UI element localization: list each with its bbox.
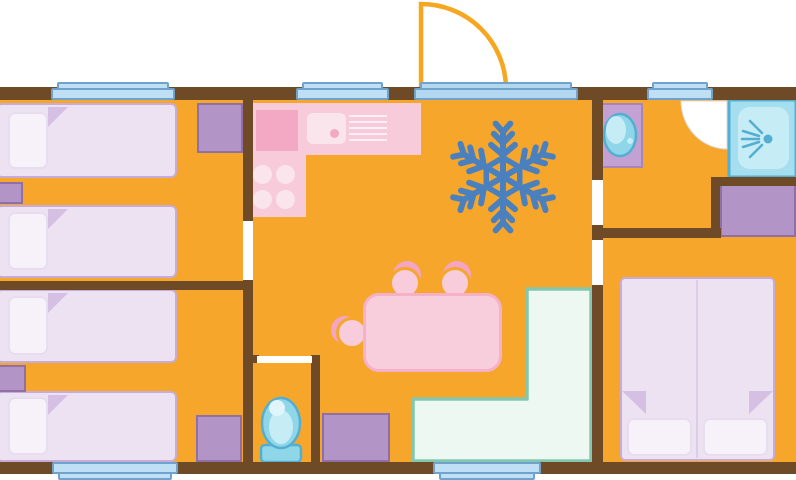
kitchen-worktop bbox=[256, 110, 298, 151]
wall-shower-bottom bbox=[711, 177, 796, 186]
hob-burner bbox=[276, 165, 295, 184]
wall-between-left-bedrooms bbox=[0, 281, 253, 290]
window-top-2 bbox=[296, 88, 389, 100]
window-bottom-2 bbox=[439, 472, 535, 480]
hob-burner bbox=[276, 190, 295, 209]
entrance-door-swing bbox=[421, 4, 506, 88]
wardrobe bbox=[197, 103, 243, 153]
kitchen-drainer bbox=[349, 115, 387, 143]
wall-bathroom-bottom bbox=[592, 228, 721, 238]
wall-shower-left bbox=[711, 177, 720, 238]
nightstand bbox=[0, 182, 23, 204]
nightstand bbox=[196, 415, 242, 462]
nightstand bbox=[0, 365, 26, 392]
window-top-1 bbox=[51, 88, 175, 100]
floor-plan bbox=[0, 0, 796, 480]
wall-living-right-lower bbox=[592, 285, 603, 462]
entrance-threshold bbox=[414, 88, 578, 100]
sink-drain bbox=[330, 129, 339, 138]
pillow bbox=[8, 112, 48, 169]
pillow bbox=[8, 397, 48, 455]
pillow bbox=[8, 212, 48, 270]
kitchen-sink bbox=[307, 113, 346, 144]
wall-living-right-upper bbox=[592, 100, 603, 180]
wall-wc-right bbox=[311, 355, 320, 462]
door-gap-wc bbox=[257, 356, 312, 363]
mattress-divider bbox=[696, 280, 698, 458]
pillow bbox=[8, 296, 48, 355]
door-gap-bedroom-right bbox=[592, 240, 603, 285]
window-top-3 bbox=[647, 88, 713, 100]
dining-table bbox=[363, 293, 502, 372]
wall-bedrooms-vertical-lower bbox=[243, 280, 253, 462]
window-bottom-1 bbox=[58, 472, 172, 480]
cabinet bbox=[322, 413, 390, 462]
pillow bbox=[703, 418, 768, 456]
washbasin-counter bbox=[600, 103, 643, 168]
pillow bbox=[627, 418, 692, 456]
hob-burner bbox=[253, 190, 272, 209]
door-gap-bedroom-left bbox=[243, 221, 253, 280]
door-gap-shower-room bbox=[592, 180, 603, 225]
hob-burner bbox=[253, 165, 272, 184]
wall-bedrooms-vertical-upper bbox=[243, 100, 253, 221]
wardrobe bbox=[720, 183, 796, 237]
